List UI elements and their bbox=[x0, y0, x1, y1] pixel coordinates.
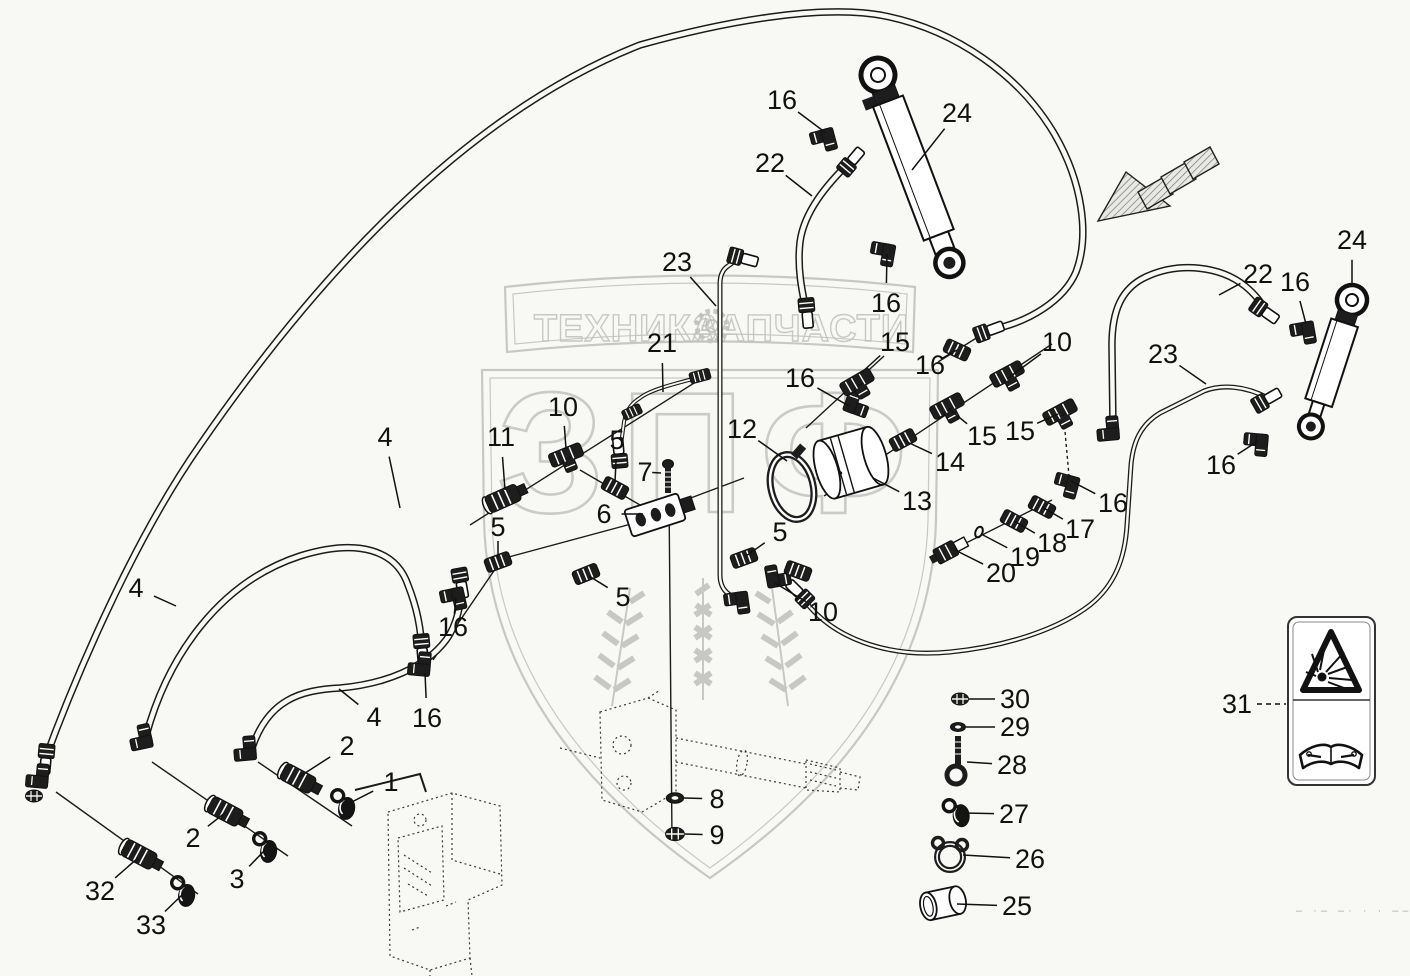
callout-12: 12 bbox=[727, 414, 757, 444]
leader-line-21 bbox=[662, 363, 663, 392]
leader-line-16 bbox=[886, 254, 887, 283]
leader-line-4 bbox=[389, 457, 400, 508]
callout-13: 13 bbox=[902, 486, 932, 516]
callout-15: 15 bbox=[880, 327, 910, 357]
callout-4: 4 bbox=[128, 573, 143, 603]
callout-10: 10 bbox=[808, 597, 838, 627]
leader-line-9 bbox=[685, 834, 703, 835]
direction-arrow-icon bbox=[1098, 147, 1219, 221]
callout-25: 25 bbox=[1002, 891, 1032, 921]
leader-line-32 bbox=[115, 858, 138, 878]
callout-9: 9 bbox=[709, 820, 724, 850]
callout-16: 16 bbox=[1098, 488, 1128, 518]
leader-line-23 bbox=[1179, 365, 1206, 384]
callout-16: 16 bbox=[915, 350, 945, 380]
safety-decal-31 bbox=[1288, 617, 1375, 785]
callout-26: 26 bbox=[1015, 844, 1045, 874]
leader-line-16 bbox=[798, 112, 826, 133]
callout-16: 16 bbox=[1280, 267, 1310, 297]
leader-line-20 bbox=[955, 550, 983, 564]
leader-line-22 bbox=[786, 175, 812, 196]
callout-10: 10 bbox=[1042, 327, 1072, 357]
leader-line-5 bbox=[589, 576, 608, 588]
callout-24: 24 bbox=[1337, 225, 1367, 255]
leader-line-27 bbox=[964, 813, 994, 814]
hydraulic-cylinder-24-right bbox=[1293, 281, 1371, 442]
callout-23: 23 bbox=[662, 247, 692, 277]
callout-6: 6 bbox=[596, 499, 611, 529]
hydraulic-parts-diagram: ТЕХНИКА ЗАПЧАСТИ ЗПФ bbox=[0, 0, 1410, 976]
callout-16: 16 bbox=[767, 85, 797, 115]
leader-line-33 bbox=[165, 895, 182, 912]
callout-33: 33 bbox=[136, 910, 166, 940]
callout-2: 2 bbox=[185, 823, 200, 853]
leader-line-16 bbox=[425, 673, 426, 698]
sensor-part-20 bbox=[927, 534, 970, 567]
hose-layer bbox=[42, 12, 1268, 768]
callout-11: 11 bbox=[487, 422, 515, 452]
callout-16: 16 bbox=[1206, 450, 1236, 480]
callout-32: 32 bbox=[85, 876, 115, 906]
callout-5: 5 bbox=[490, 512, 505, 542]
leader-line-16 bbox=[1300, 301, 1306, 324]
callout-15: 15 bbox=[1005, 416, 1035, 446]
eyebolt-part-28 bbox=[945, 736, 967, 786]
callout-18: 18 bbox=[1037, 528, 1067, 558]
nut-part-30 bbox=[952, 693, 969, 705]
leader-line-19 bbox=[981, 534, 1007, 548]
read-manual-icon bbox=[1300, 745, 1362, 768]
hydraulic-cylinder-24-left bbox=[850, 53, 971, 284]
leader-line-7 bbox=[652, 472, 661, 473]
callout-4: 4 bbox=[377, 422, 392, 452]
callout-10: 10 bbox=[548, 392, 578, 422]
parts-diagram-page: ТЕХНИКА ЗАПЧАСТИ ЗПФ bbox=[0, 0, 1410, 976]
callout-22: 22 bbox=[755, 148, 785, 178]
callout-1: 1 bbox=[383, 767, 398, 797]
callout-27: 27 bbox=[999, 799, 1029, 829]
callout-4: 4 bbox=[366, 702, 381, 732]
callout-21: 21 bbox=[647, 328, 677, 358]
callout-24: 24 bbox=[942, 98, 972, 128]
sleeve-part-25 bbox=[918, 885, 969, 922]
callout-3: 3 bbox=[229, 864, 244, 894]
clamp-part-26 bbox=[933, 838, 968, 871]
footer-marks: – ·– –· · · –– — – bbox=[1296, 905, 1410, 917]
washer-part-29 bbox=[951, 723, 966, 732]
leader-line-23 bbox=[690, 277, 716, 306]
leader-line-26 bbox=[963, 855, 1010, 858]
callout-14: 14 bbox=[935, 447, 965, 477]
callout-16: 16 bbox=[871, 288, 901, 318]
callout-5: 5 bbox=[772, 517, 787, 547]
machine-ghost-bracket bbox=[388, 793, 502, 976]
leader-line-28 bbox=[967, 762, 992, 764]
callout-16: 16 bbox=[412, 703, 442, 733]
callout-29: 29 bbox=[1000, 712, 1030, 742]
washer-part-8 bbox=[666, 793, 683, 803]
leader-line-2 bbox=[299, 757, 330, 777]
callout-23: 23 bbox=[1148, 339, 1178, 369]
callout-17: 17 bbox=[1065, 514, 1095, 544]
leader-line-8 bbox=[684, 798, 702, 799]
callout-2: 2 bbox=[339, 731, 354, 761]
o-ring-part-19 bbox=[974, 526, 985, 539]
callout-5: 5 bbox=[615, 582, 630, 612]
callout-5: 5 bbox=[609, 425, 624, 455]
callout-16: 16 bbox=[785, 363, 815, 393]
callout-31: 31 bbox=[1222, 689, 1252, 719]
callout-20: 20 bbox=[986, 558, 1016, 588]
callout-22: 22 bbox=[1243, 259, 1273, 289]
callout-30: 30 bbox=[1000, 684, 1030, 714]
leader-line-4 bbox=[154, 596, 176, 606]
leader-line-22 bbox=[1219, 283, 1240, 295]
leader-line-4 bbox=[339, 689, 358, 705]
callout-16: 16 bbox=[438, 612, 468, 642]
callout-8: 8 bbox=[709, 784, 724, 814]
callout-15: 15 bbox=[967, 421, 997, 451]
callout-7: 7 bbox=[637, 457, 652, 487]
nut-part-9 bbox=[666, 827, 685, 840]
callout-28: 28 bbox=[997, 750, 1027, 780]
